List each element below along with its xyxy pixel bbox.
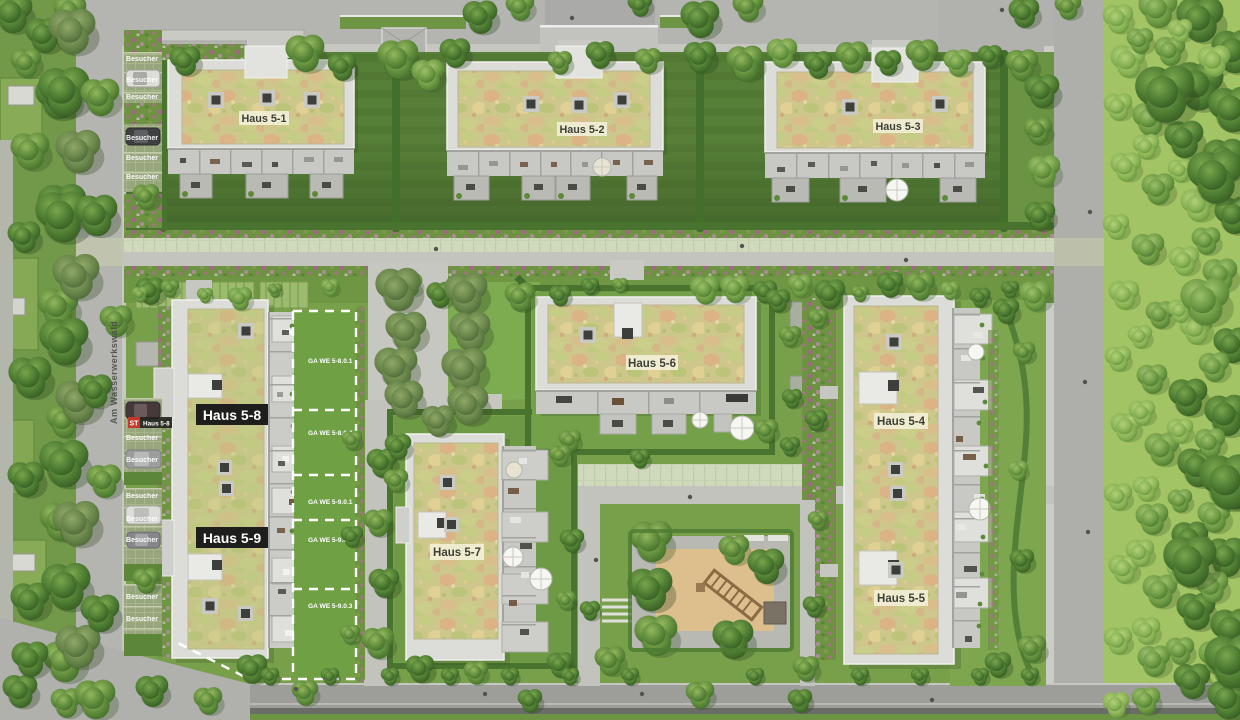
svg-text:Besucher: Besucher xyxy=(126,616,158,623)
svg-text:Haus 5-5: Haus 5-5 xyxy=(877,593,926,605)
svg-text:ST: ST xyxy=(130,421,140,428)
svg-text:Besucher: Besucher xyxy=(126,77,158,84)
svg-text:Besucher: Besucher xyxy=(126,457,158,464)
svg-text:Besucher: Besucher xyxy=(126,155,158,162)
svg-text:Besucher: Besucher xyxy=(126,493,158,500)
svg-text:GA WE 5-9.0.3: GA WE 5-9.0.3 xyxy=(308,603,353,610)
svg-text:Besucher: Besucher xyxy=(126,174,158,181)
svg-text:Haus 5-8: Haus 5-8 xyxy=(143,421,170,428)
svg-text:Haus 5-6: Haus 5-6 xyxy=(628,358,676,370)
svg-text:Haus 5-4: Haus 5-4 xyxy=(877,416,926,428)
svg-text:Haus 5-3: Haus 5-3 xyxy=(875,121,920,133)
svg-text:Am Wasserwerkswald: Am Wasserwerkswald xyxy=(109,321,119,424)
svg-text:Besucher: Besucher xyxy=(126,516,158,523)
svg-text:Besucher: Besucher xyxy=(126,94,158,101)
svg-text:Besucher: Besucher xyxy=(126,135,158,142)
svg-text:GA WE 5-8.0.1: GA WE 5-8.0.1 xyxy=(308,358,353,365)
svg-text:GA WE 5-9.0.1: GA WE 5-9.0.1 xyxy=(308,499,353,506)
svg-text:Haus 5-1: Haus 5-1 xyxy=(241,113,286,125)
svg-text:Besucher: Besucher xyxy=(126,537,158,544)
svg-text:Haus 5-7: Haus 5-7 xyxy=(433,547,481,559)
svg-text:Haus 5-9: Haus 5-9 xyxy=(203,530,262,546)
svg-text:Besucher: Besucher xyxy=(126,435,158,442)
svg-text:Haus 5-2: Haus 5-2 xyxy=(559,124,604,136)
svg-text:Haus 5-8: Haus 5-8 xyxy=(203,407,262,423)
svg-text:Besucher: Besucher xyxy=(126,594,158,601)
svg-text:Besucher: Besucher xyxy=(126,56,158,63)
